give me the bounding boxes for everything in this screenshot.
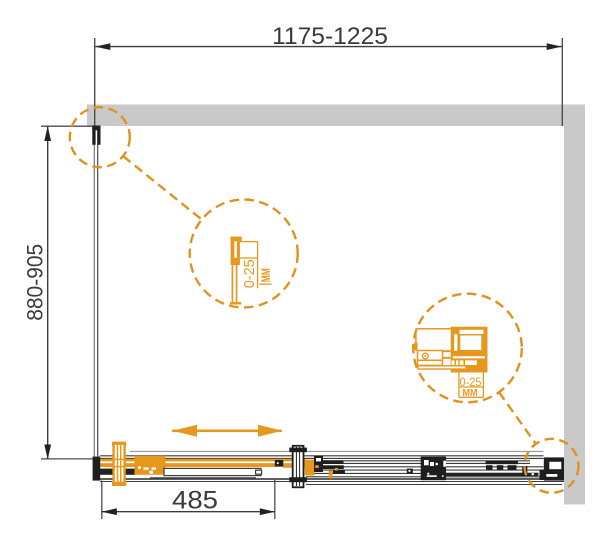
svg-text:ММ: ММ	[259, 268, 273, 282]
svg-text:ММ: ММ	[463, 387, 478, 399]
svg-text:485: 485	[172, 487, 218, 515]
svg-text:1175-1225: 1175-1225	[272, 23, 388, 50]
svg-text:0-25: 0-25	[241, 259, 258, 288]
svg-text:880-905: 880-905	[23, 244, 48, 321]
